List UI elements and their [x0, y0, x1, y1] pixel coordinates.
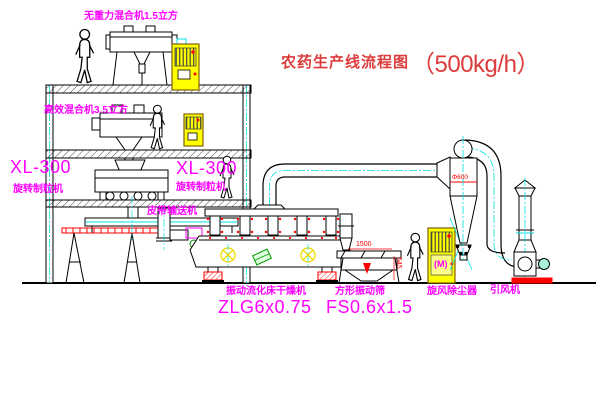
- square-sieve: [337, 249, 401, 283]
- exhaust-duct-dryer-to-cyclone: [263, 164, 441, 205]
- floor-slab-2: [46, 150, 251, 158]
- label-dryer-model: ZLG6x0.75: [218, 298, 312, 316]
- process-flow-diagram: 农药生产线流程图 （500kg/h） 无重力混合机1.5立方 高效混合机3.5立…: [0, 0, 600, 403]
- worker-ground: [407, 233, 423, 280]
- dryer-spring-mounts: [202, 267, 338, 283]
- label-top-mixer: 无重力混合机1.5立方: [84, 12, 178, 22]
- worker-roof: [76, 30, 94, 83]
- label-dryer-name: 振动流化床干燥机: [226, 287, 306, 297]
- label-cyclone: 旋风除尘器: [427, 287, 477, 297]
- control-cabinet-level2: [184, 114, 203, 146]
- label-granulator-left-model: XL-300: [10, 158, 71, 176]
- title-capacity: （500kg/h）: [411, 44, 540, 79]
- roller-conveyor-red: [62, 228, 158, 233]
- dimension-cyclone-diameter: Φ600: [452, 175, 468, 182]
- label-granulator-right-name: 旋转制粒机: [176, 183, 226, 193]
- label-granulator-right-model: XL-300: [176, 159, 237, 177]
- control-cabinet-ground: [428, 228, 455, 283]
- label-belt-conveyor: 皮带输送机: [147, 207, 197, 217]
- label-mid-mixer: 高效混合机3.5立方: [44, 106, 128, 116]
- label-sieve-model: FS0.6x1.5: [326, 298, 413, 316]
- dimension-sieve-length: 1500: [356, 241, 372, 248]
- title-text: 农药生产线流程图: [281, 51, 409, 72]
- cabinet-meter-symbol: (M): [434, 259, 448, 269]
- control-cabinet-roof: [172, 44, 199, 90]
- dimension-sieve-height: 545: [395, 257, 402, 269]
- roof-slab: [46, 85, 251, 93]
- conveyor-trestles: [66, 233, 140, 283]
- diagram-title: 农药生产线流程图 （500kg/h）: [281, 44, 540, 79]
- induced-draft-fan: [512, 252, 552, 283]
- label-granulator-left-name: 旋转制粒机: [13, 185, 63, 195]
- label-sieve-name: 方形振动筛: [335, 287, 385, 297]
- label-fan: 引风机: [490, 286, 520, 296]
